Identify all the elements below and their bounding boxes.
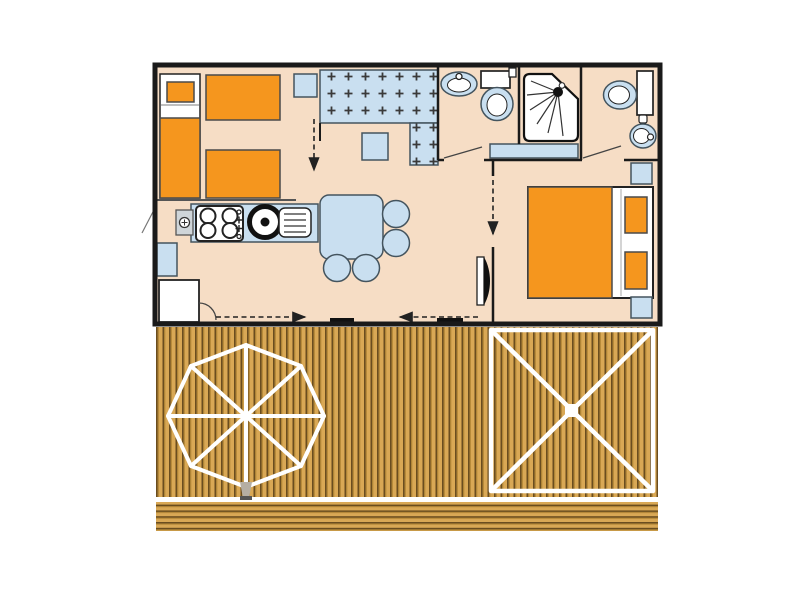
floorplan <box>0 0 800 600</box>
stove-icon <box>196 206 243 241</box>
round-sink-icon <box>250 207 281 238</box>
side-shelf <box>157 243 177 276</box>
chair <box>324 255 351 282</box>
single-bed-bottom <box>206 150 280 198</box>
nightstand <box>631 297 652 318</box>
drainboard-icon <box>279 208 311 237</box>
fridge <box>159 280 199 322</box>
single-bed-top <box>206 75 280 120</box>
nightstand <box>631 163 652 184</box>
bench <box>490 144 578 158</box>
dining-table <box>320 195 383 259</box>
parasol-pole-base <box>240 496 252 500</box>
chair <box>383 230 410 257</box>
pillow <box>625 197 647 233</box>
washbasin-icon <box>630 124 656 148</box>
floorplan-canvas <box>0 0 800 600</box>
house <box>142 63 660 325</box>
pillow <box>167 82 194 102</box>
stool <box>362 133 388 160</box>
terrace-deck <box>156 327 658 531</box>
chair <box>383 201 410 228</box>
toilet-icon <box>481 68 516 121</box>
pillow <box>625 252 647 289</box>
double-bed <box>528 187 653 298</box>
chair <box>353 255 380 282</box>
awning-center <box>565 404 578 417</box>
washbasin-icon <box>441 72 477 96</box>
mattress <box>160 118 200 198</box>
nightstand <box>294 74 317 97</box>
single-bed-vertical <box>160 74 200 198</box>
deck-steps <box>156 502 658 531</box>
water-heater-icon <box>176 210 193 235</box>
mattress <box>528 187 612 298</box>
